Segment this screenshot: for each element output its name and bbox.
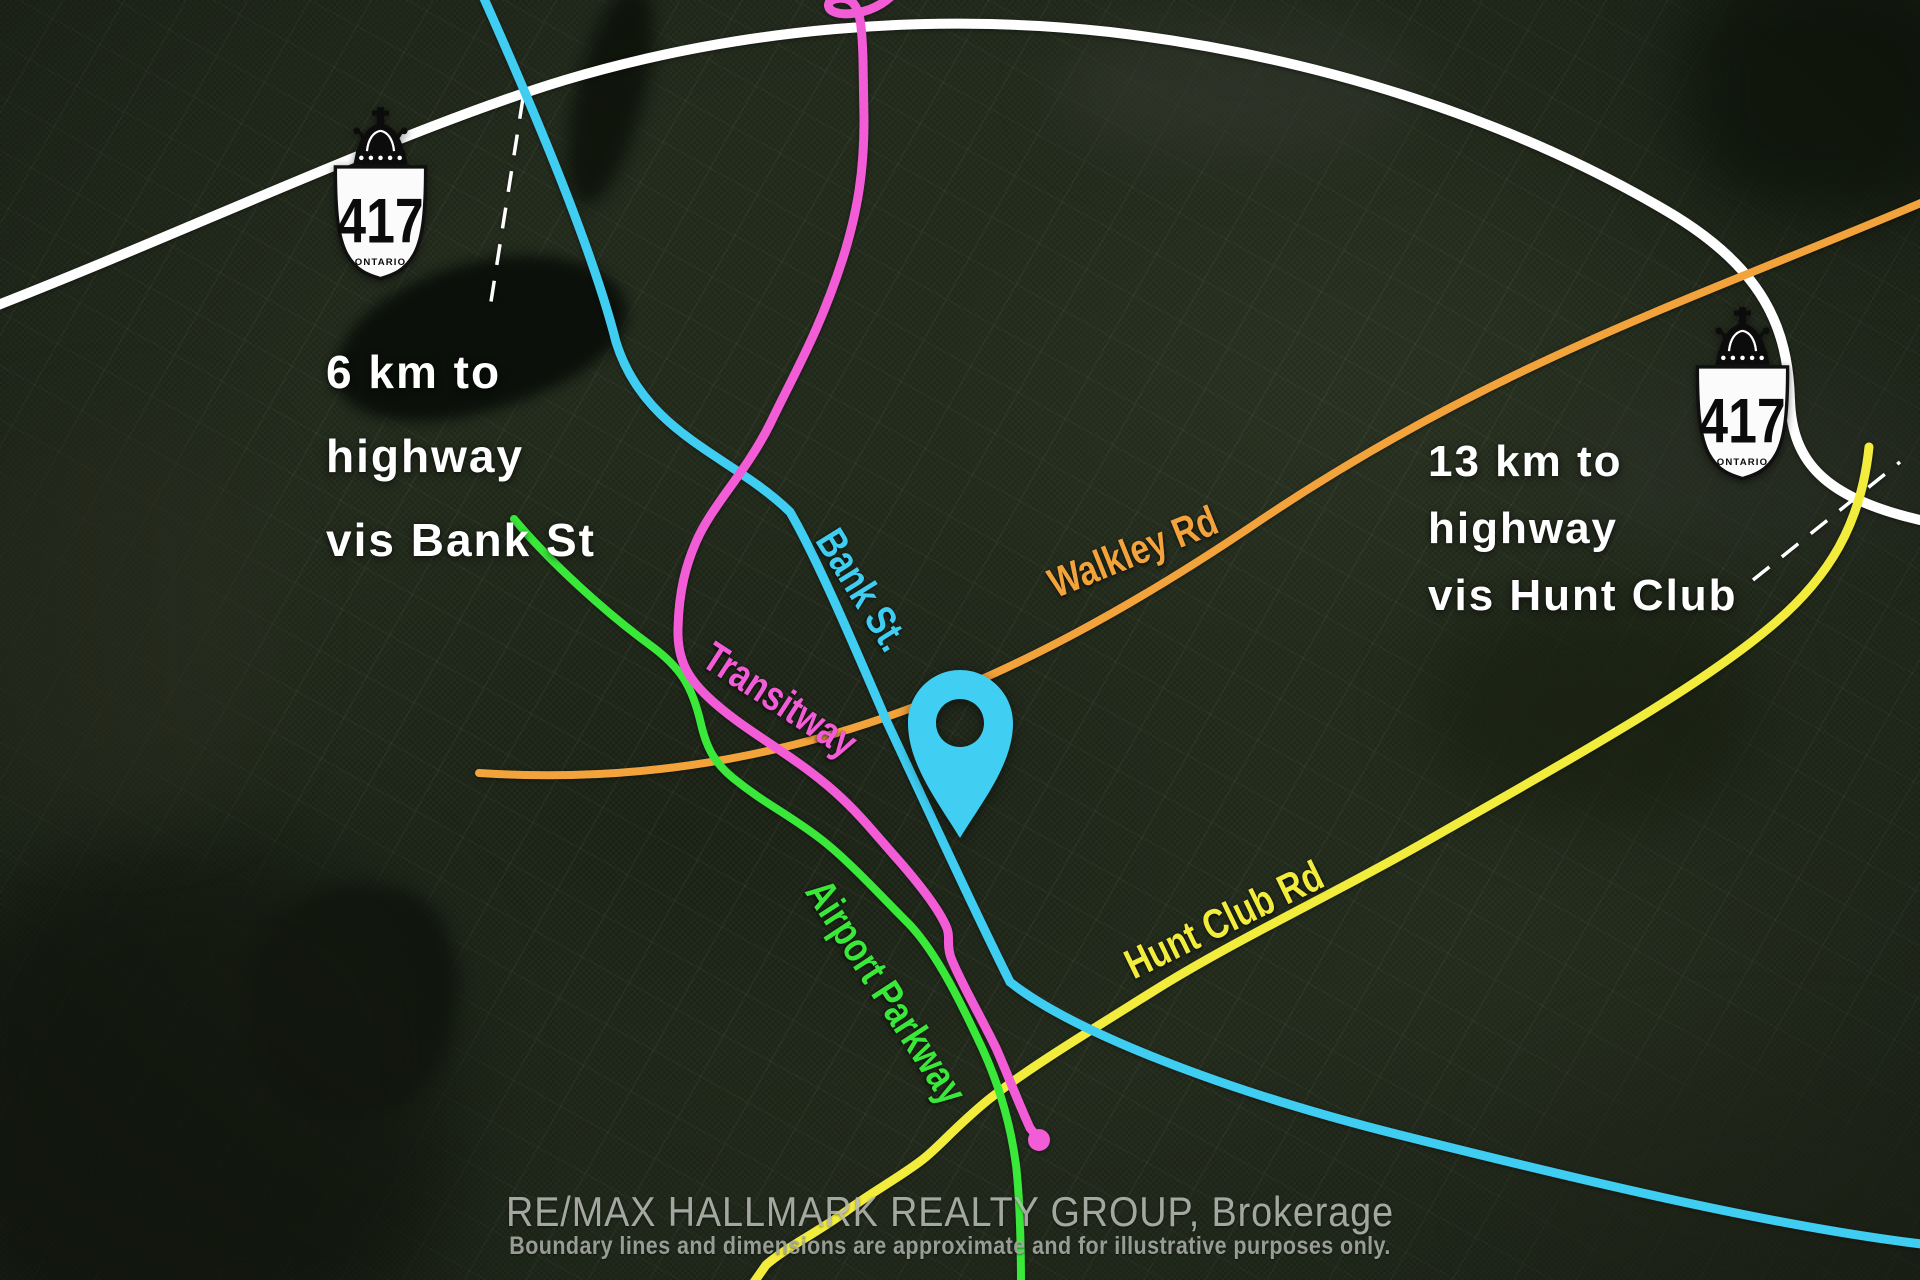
highway-417-shield-icon: 417 ONTARIO — [324, 106, 437, 282]
shield-route-number: 417 — [337, 187, 423, 257]
location-pin-icon — [890, 655, 1030, 855]
right-distance-annotation: 13 km to highway vis Hunt Club — [1428, 428, 1738, 629]
annotation-line: highway — [1428, 495, 1738, 562]
annotation-line: 13 km to — [1428, 428, 1738, 495]
brokerage-watermark: RE/MAX HALLMARK REALTY GROUP, Brokerage — [506, 1188, 1394, 1236]
airport-parkway-line — [514, 519, 1021, 1280]
disclaimer-text: Boundary lines and dimensions are approx… — [509, 1232, 1391, 1261]
transitway-endpoint-dot — [1028, 1129, 1050, 1151]
annotation-line: 6 km to — [326, 330, 596, 414]
dashed-connector-left — [490, 98, 523, 308]
annotation-line: highway — [326, 414, 596, 498]
annotation-line: vis Hunt Club — [1428, 562, 1738, 629]
shield-province: ONTARIO — [355, 257, 406, 268]
annotation-line: vis Bank St — [326, 498, 596, 582]
satellite-map: Bank St. Transitway Walkley Rd Airport P… — [0, 0, 1920, 1280]
left-distance-annotation: 6 km to highway vis Bank St — [326, 330, 596, 582]
